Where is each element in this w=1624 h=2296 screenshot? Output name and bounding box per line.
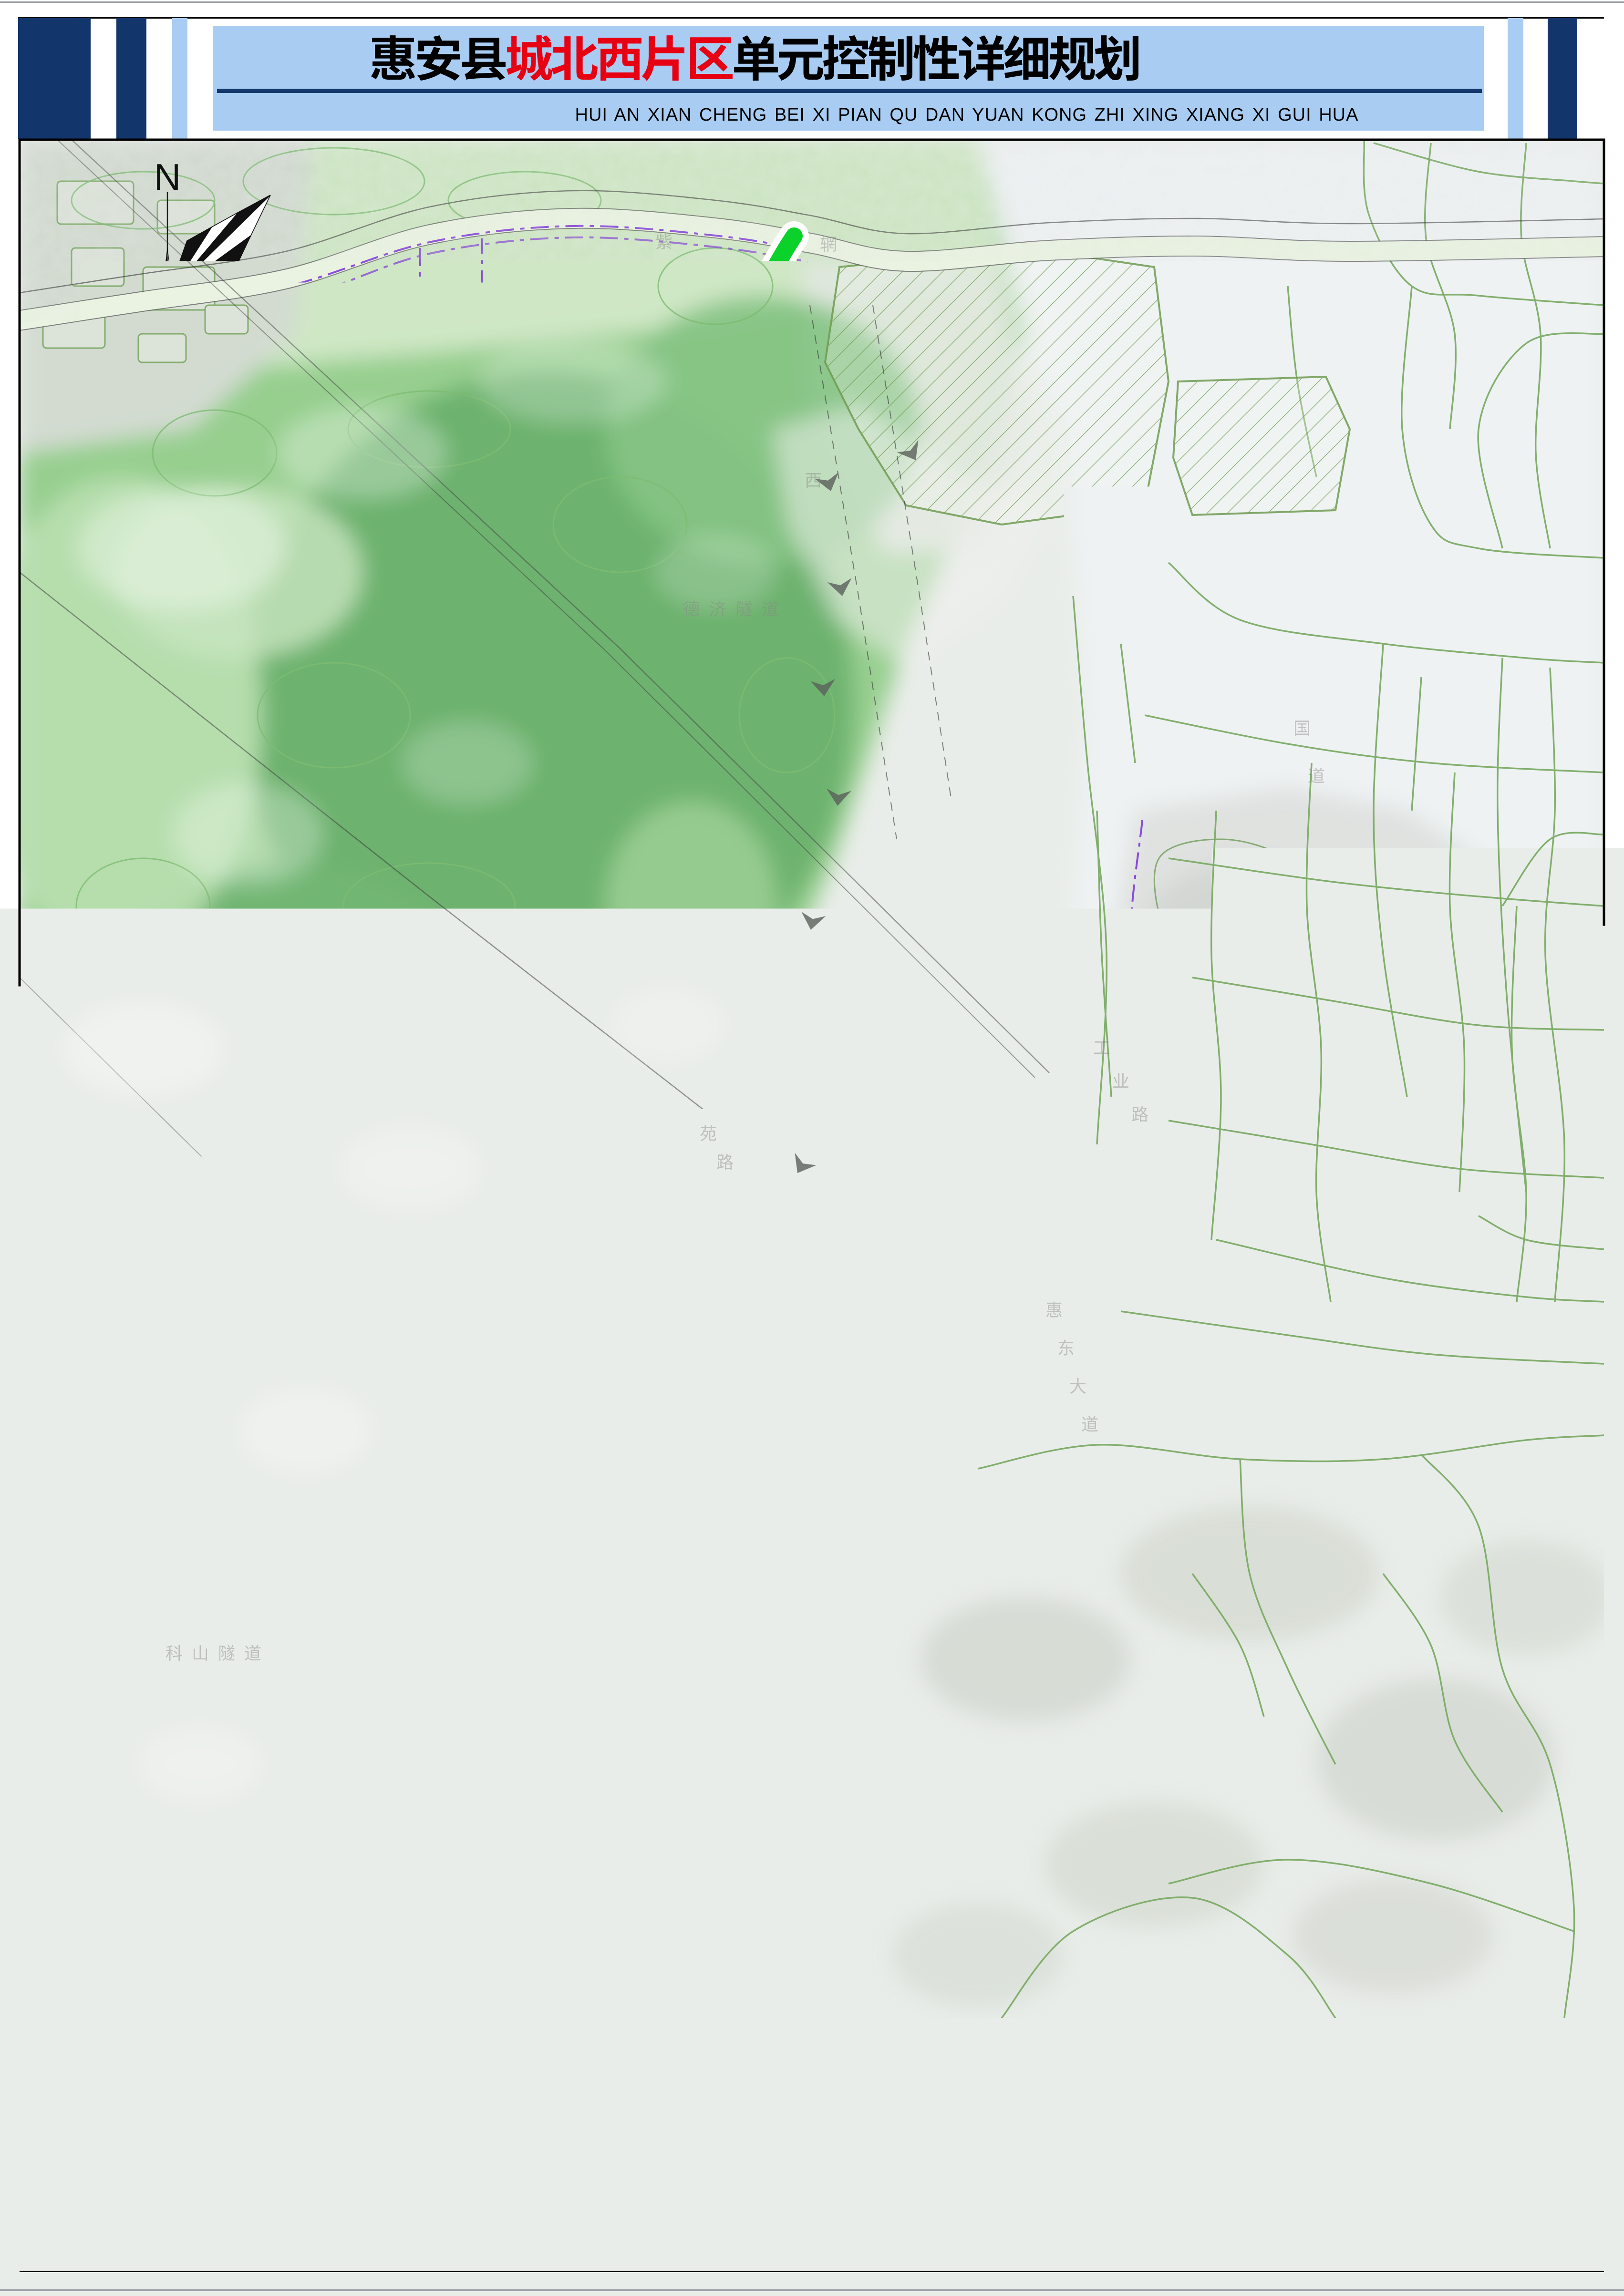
svg-text:N: N (154, 156, 181, 198)
svg-text:HUI AN XIAN CHENG BEI XI PIAN: HUI AN XIAN CHENG BEI XI PIAN QU DAN YUA… (575, 105, 1359, 125)
svg-text:500M: 500M (217, 353, 269, 376)
svg-text:250: 250 (150, 353, 185, 376)
svg-text:100: 100 (97, 353, 132, 376)
svg-text:0: 0 (73, 353, 85, 376)
